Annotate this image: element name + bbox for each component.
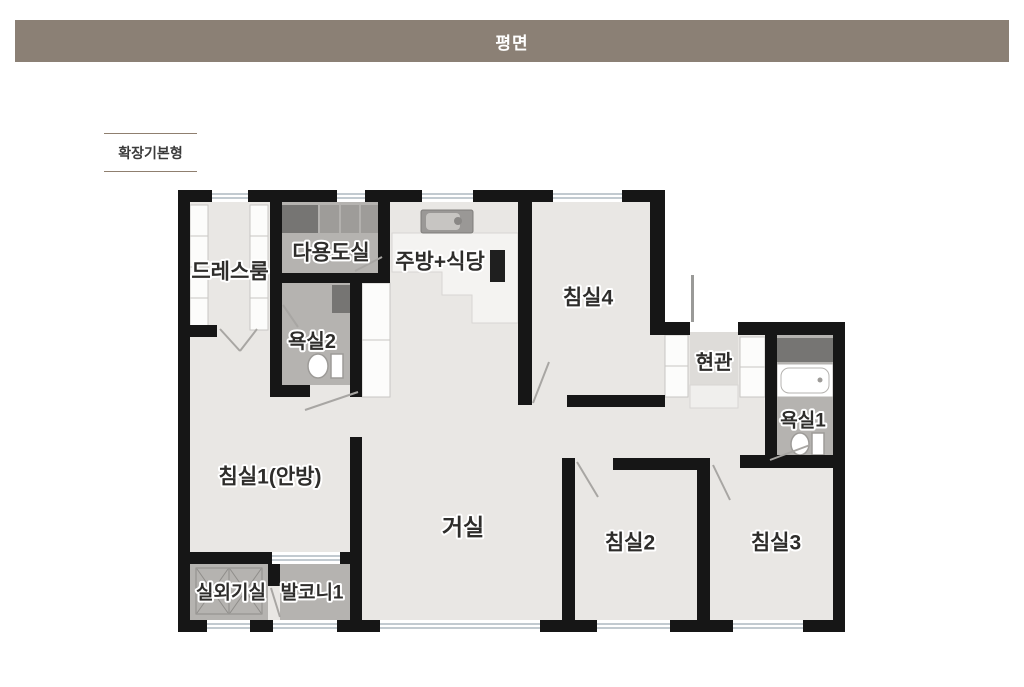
floorplan: 드레스룸다용도실주방+식당침실4욕실2현관욕실1침실1(안방)거실침실2침실3실…: [0, 0, 1024, 687]
room-label-kitchen: 주방+식당: [395, 251, 485, 274]
room-label-bedroom4: 침실4: [563, 287, 614, 310]
wall-bathroom2-right: [350, 283, 362, 397]
window: [597, 620, 670, 632]
wall-outdoor-divider: [268, 564, 280, 586]
entrance-step: [690, 385, 738, 408]
room-label-bathroom2: 욕실2: [288, 330, 336, 353]
wall-core-left: [270, 202, 282, 397]
wall-bedroom1-bottom: [188, 552, 272, 564]
wall-bedroom3-left: [697, 458, 710, 620]
balcony-door-window: [272, 552, 340, 564]
wall-bedroom2-top: [613, 458, 710, 470]
window: [273, 620, 337, 632]
room-label-dressroom: 드레스룸: [191, 261, 268, 284]
bathroom2-toilet: [308, 354, 328, 378]
room-label-outdoor-unit: 실외기실: [196, 582, 266, 604]
wall-bathroom1-bottom: [740, 455, 845, 468]
wall-kitchen-bedroom4: [518, 202, 532, 405]
wall-right: [833, 322, 845, 632]
window: [337, 190, 365, 202]
room-label-balcony1: 발코니1: [280, 582, 343, 604]
wall-bedroom4-bottom: [567, 395, 665, 407]
washer: [320, 205, 378, 233]
utility-cabinet: [282, 205, 318, 233]
window: [422, 190, 473, 202]
wall-entry-left: [665, 322, 690, 335]
wall-balcony-corner: [340, 552, 362, 564]
page: 평면 확장기본형: [0, 0, 1024, 687]
wall-entry-right: [738, 322, 845, 335]
window: [553, 190, 622, 202]
wall-bathroom2-bottom: [270, 385, 310, 397]
bathroom1-toilet-tank: [812, 433, 824, 455]
window: [207, 620, 250, 632]
bathroom2-toilet-tank: [331, 354, 343, 378]
room-label-bedroom2: 침실2: [605, 532, 655, 555]
wall-living-left: [350, 437, 362, 632]
bathtub-drain: [818, 378, 823, 383]
bathroom1-cabinet: [777, 338, 833, 362]
room-label-bedroom3: 침실3: [751, 532, 801, 555]
window: [380, 620, 540, 632]
room-label-entrance: 현관: [696, 351, 733, 374]
kitchen-appliance: [490, 250, 505, 282]
window: [212, 190, 248, 202]
room-label-utility: 다용도실: [292, 242, 369, 265]
bathroom2-duct: [332, 285, 350, 313]
room-label-bedroom1: 침실1(안방): [219, 466, 322, 489]
room-label-bathroom1: 욕실1: [780, 410, 826, 432]
wall-utility-bottom: [270, 273, 390, 283]
wall-bedroom2-left: [562, 458, 575, 620]
wall-utility-right: [378, 202, 390, 283]
wall-left: [178, 190, 190, 632]
wall-dressroom-bottom: [178, 325, 217, 337]
wall-bathroom1-left: [765, 332, 777, 468]
window: [733, 620, 803, 632]
room-label-living: 거실: [442, 514, 484, 540]
kitchen-faucet: [454, 217, 462, 225]
wall-bedroom4-right: [650, 190, 665, 335]
entry-door-leaf: [691, 275, 694, 322]
